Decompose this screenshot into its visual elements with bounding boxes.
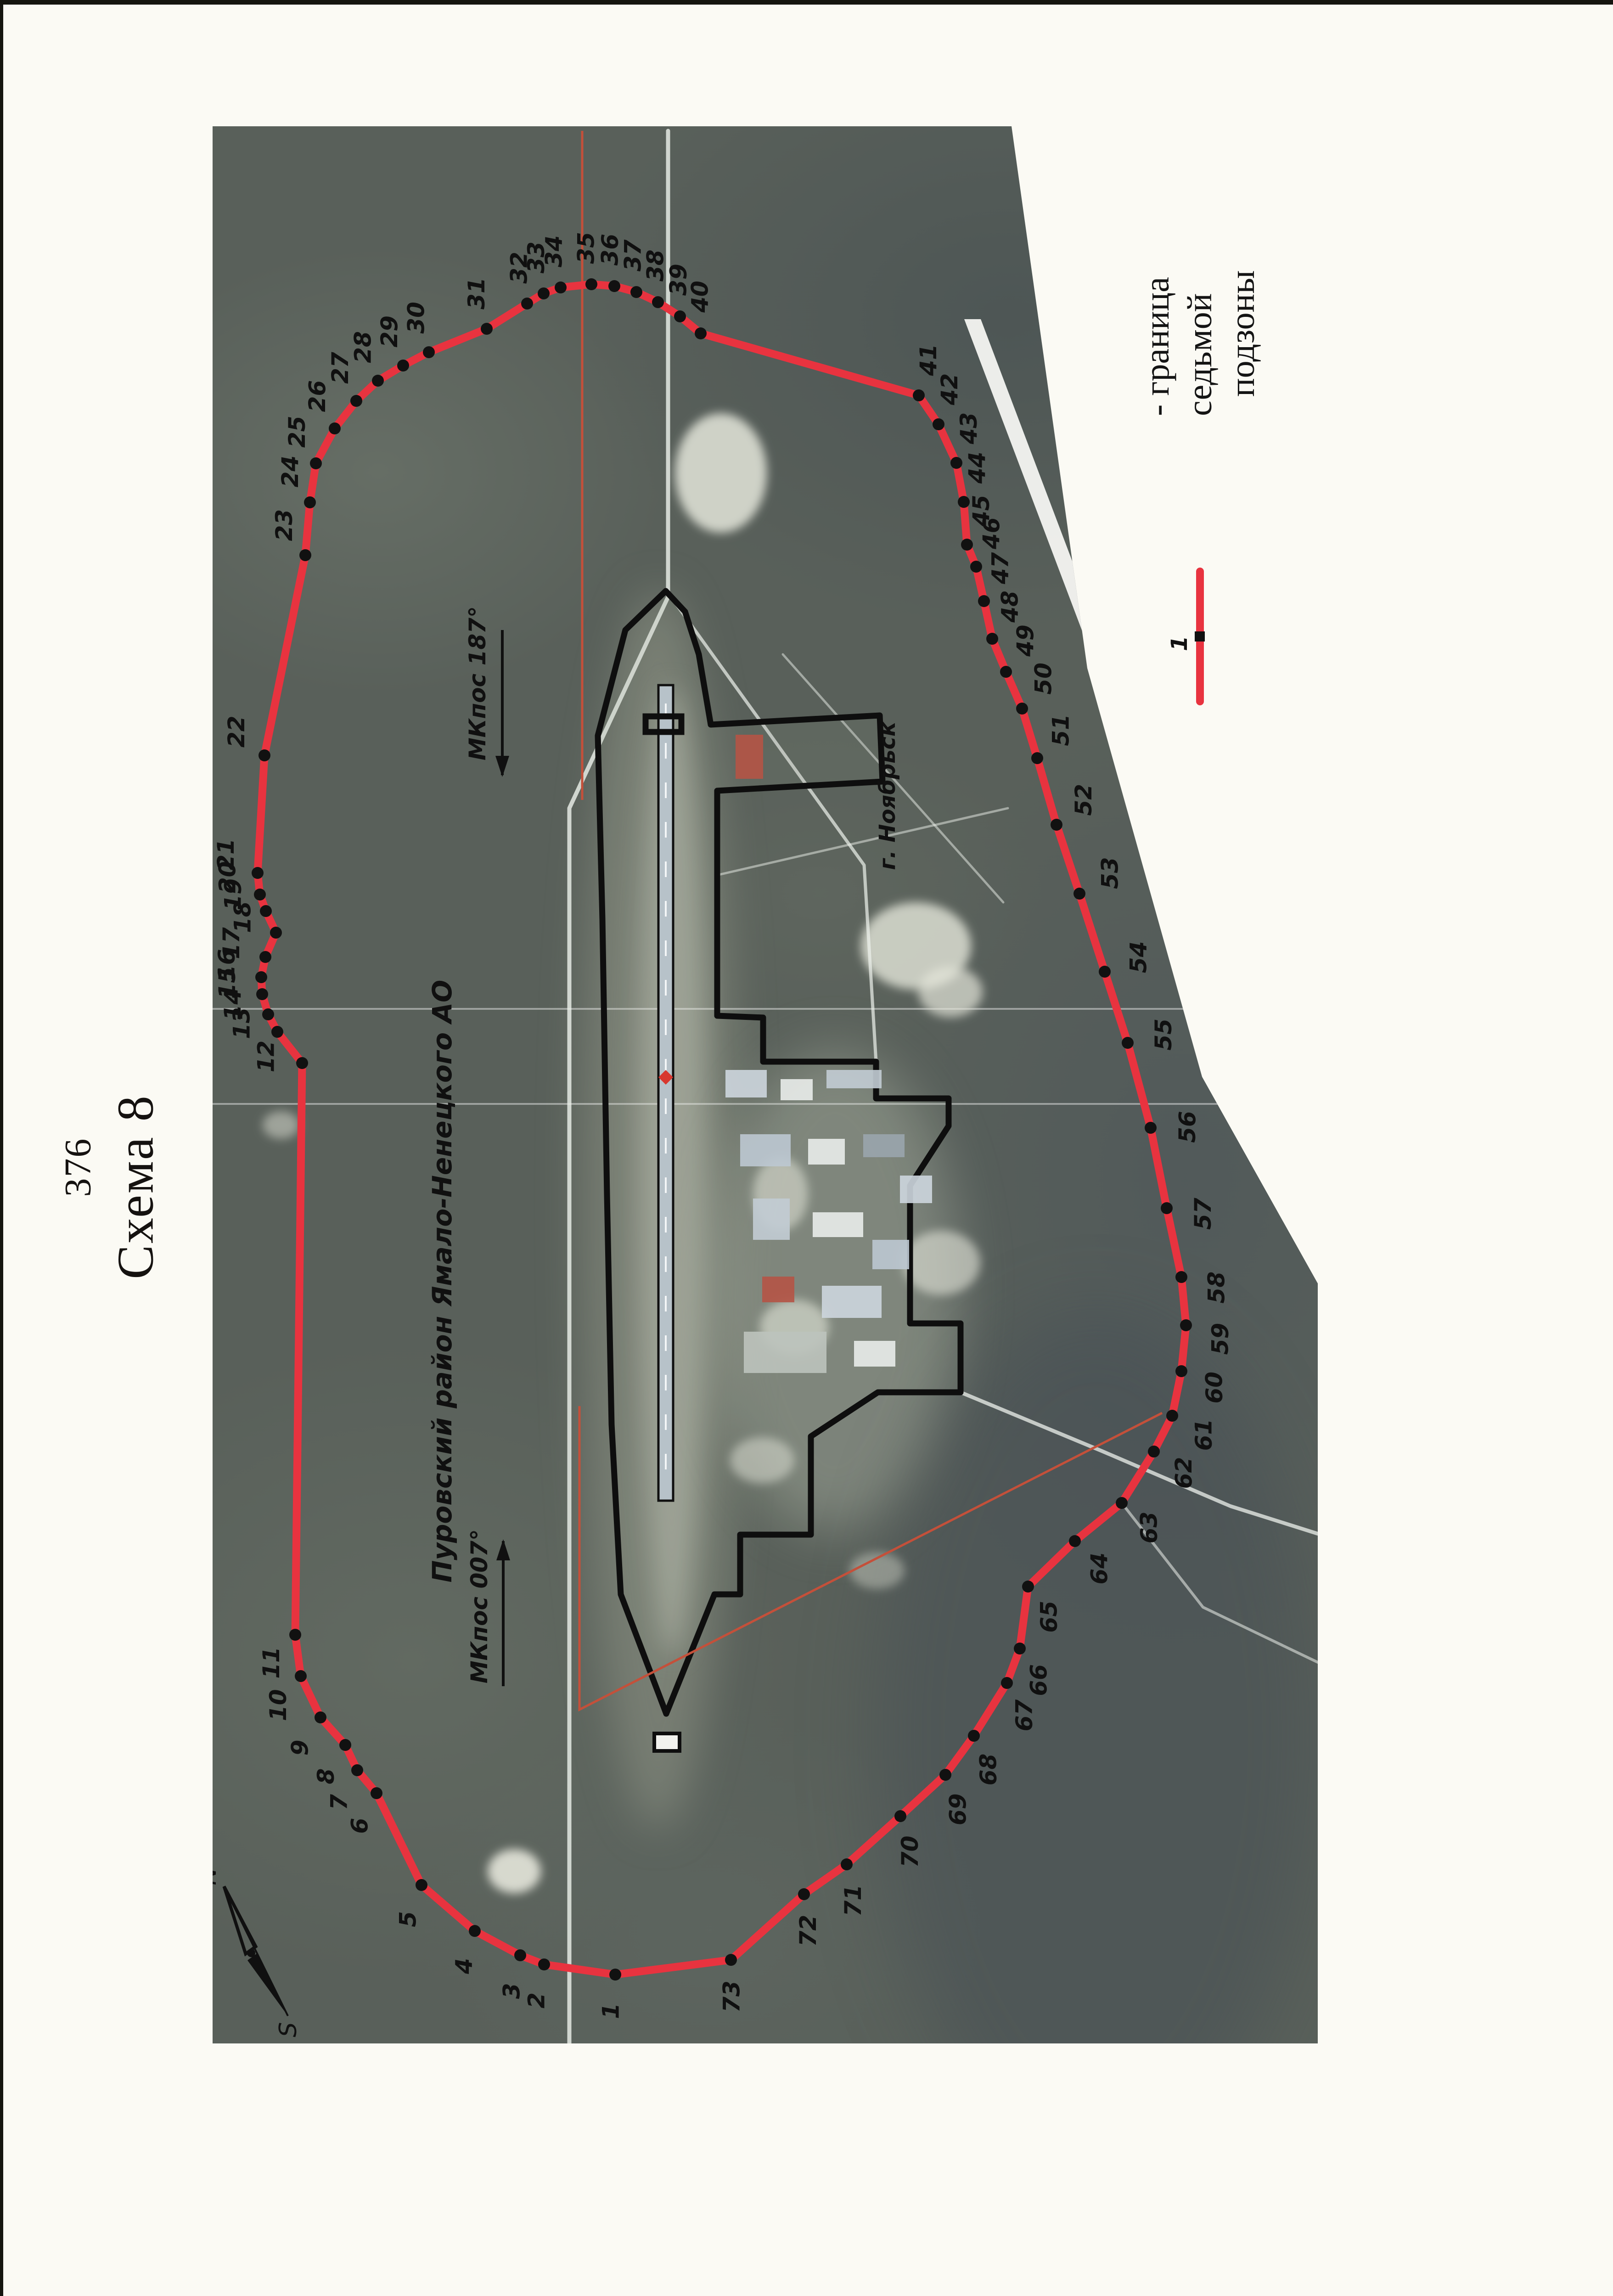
building-block <box>872 1240 909 1269</box>
boundary-point-dot <box>329 422 341 434</box>
boundary-point-dot <box>315 1711 326 1723</box>
boundary-point-label: 62 <box>1170 1457 1197 1489</box>
boundary-point-label: 59 <box>1207 1323 1233 1355</box>
boundary-point-dot <box>1001 1677 1013 1689</box>
boundary-point-dot <box>255 971 267 983</box>
boundary-point-dot <box>1161 1202 1173 1214</box>
boundary-point-dot <box>798 1888 810 1900</box>
building-block <box>826 1070 882 1088</box>
boundary-point-label: 43 <box>955 412 982 445</box>
compass: NS <box>194 1868 302 2037</box>
legend-caption-line2: подзоны <box>1221 191 1264 416</box>
boundary-point-dot <box>469 1925 481 1937</box>
compass-pivot <box>247 1949 255 1957</box>
boundary-point-label: 6 <box>346 1818 373 1834</box>
building-block <box>808 1139 845 1165</box>
boundary-point-dot <box>555 281 567 293</box>
legend-caption-line1: - граница седьмой <box>1136 191 1221 416</box>
sand-patch <box>675 413 767 533</box>
boundary-point-label: 12 <box>253 1041 279 1073</box>
boundary-point-dot <box>538 287 550 299</box>
boundary-point-label: 2 <box>523 1992 550 2009</box>
legend-symbol: 1 <box>1196 568 1204 705</box>
boundary-point-label: 30 <box>403 302 430 334</box>
legend-point-dot <box>1195 631 1205 642</box>
boundary-point-label: 35 <box>573 232 599 264</box>
boundary-point-dot <box>1099 966 1111 978</box>
boundary-point-label: 61 <box>1190 1419 1217 1451</box>
boundary-point-dot <box>259 749 270 761</box>
boundary-point-dot <box>295 1670 307 1682</box>
boundary-point-label: 58 <box>1203 1272 1230 1304</box>
boundary-point-dot <box>372 375 384 387</box>
boundary-point-dot <box>339 1739 351 1751</box>
building-block <box>781 1079 813 1100</box>
boundary-point-dot <box>1175 1271 1187 1283</box>
boundary-point-dot <box>970 561 982 573</box>
boundary-point-dot <box>695 327 707 339</box>
boundary-point-label: 67 <box>1011 1699 1038 1732</box>
building-block <box>863 1134 905 1157</box>
legend-boundary-line-symbol: 1 <box>1196 568 1204 705</box>
boundary-point-dot <box>961 539 973 551</box>
course-label: МКпос 187° <box>464 606 491 760</box>
boundary-point-dot <box>397 360 409 371</box>
boundary-point-dot <box>260 905 272 917</box>
boundary-point-dot <box>1145 1122 1157 1134</box>
legend-caption: - граница седьмой подзоны <box>1136 191 1264 416</box>
course-label: МКпос 007° <box>466 1529 493 1683</box>
boundary-point-label: 47 <box>987 552 1014 585</box>
boundary-point-dot <box>986 633 998 645</box>
boundary-point-dot <box>1014 1643 1026 1654</box>
boundary-point-label: 66 <box>1025 1664 1052 1696</box>
boundary-point-dot <box>481 323 493 335</box>
boundary-point-dot <box>259 951 271 963</box>
boundary-point-dot <box>939 1769 951 1781</box>
building-block <box>725 1070 767 1097</box>
course-arrow-head <box>495 756 509 777</box>
boundary-point-dot <box>416 1879 427 1891</box>
boundary-point-label: 70 <box>897 1835 923 1868</box>
boundary-point-label: 41 <box>915 344 942 377</box>
region-label: Пуровский район Ямало-Ненецкого АО <box>427 980 458 1583</box>
boundary-point-label: 10 <box>265 1689 292 1721</box>
boundary-point-label: 7 <box>326 1794 352 1810</box>
sand-patch <box>263 1111 299 1139</box>
boundary-point-dot <box>1148 1446 1160 1458</box>
boundary-point-label: 5 <box>395 1911 422 1927</box>
boundary-point-dot <box>725 1954 737 1966</box>
boundary-point-label: 55 <box>1150 1019 1177 1051</box>
boundary-point-label: 9 <box>287 1740 313 1756</box>
boundary-point-label: 31 <box>463 277 490 310</box>
boundary-point-dot <box>1022 1581 1034 1593</box>
boundary-point-dot <box>1000 666 1012 678</box>
boundary-point-dot <box>521 298 533 310</box>
boundary-point-dot <box>1016 703 1028 715</box>
boundary-point-dot <box>350 395 362 407</box>
boundary-point-dot <box>262 1008 274 1020</box>
boundary-point-label: 68 <box>975 1754 1002 1786</box>
boundary-point-label: 69 <box>944 1793 971 1825</box>
boundary-point-label: 1 <box>597 2003 624 2019</box>
boundary-point-dot <box>1180 1319 1192 1331</box>
boundary-point-label: 29 <box>376 315 403 348</box>
boundary-point-dot <box>585 278 597 290</box>
boundary-point-label: 52 <box>1070 784 1097 816</box>
boundary-point-dot <box>1051 819 1062 831</box>
boundary-point-dot <box>296 1057 308 1069</box>
compass-needle-south <box>247 1953 288 2016</box>
building-block <box>744 1332 826 1373</box>
boundary-point-dot <box>652 296 664 308</box>
boundary-point-label: 21 <box>213 838 239 871</box>
boundary-point-dot <box>304 496 316 508</box>
legend-point-number: 1 <box>1167 636 1192 651</box>
building-block <box>762 1277 794 1302</box>
boundary-point-label: 65 <box>1036 1601 1062 1633</box>
boundary-point-dot <box>371 1787 382 1799</box>
boundary-point-label: 26 <box>304 380 331 412</box>
document-page: 376 Схема 8 1234567891011121314151617181… <box>0 0 1613 2296</box>
boundary-point-label: 54 <box>1125 941 1152 974</box>
boundary-point-label: 28 <box>349 331 376 363</box>
boundary-point-label: 4 <box>451 1958 478 1975</box>
boundary-point-label: 40 <box>686 281 713 313</box>
boundary-point-dot <box>289 1629 301 1641</box>
boundary-point-label: 60 <box>1201 1372 1228 1404</box>
building-block <box>822 1286 882 1318</box>
boundary-point-dot <box>252 867 264 879</box>
boundary-point-dot <box>1073 888 1085 900</box>
boundary-point-label: 71 <box>840 1885 866 1917</box>
boundary-point-label: 48 <box>997 591 1023 623</box>
boundary-point-dot <box>841 1858 853 1870</box>
boundary-point-dot <box>913 389 925 401</box>
boundary-point-dot <box>1166 1410 1178 1422</box>
boundary-point-label: 63 <box>1136 1512 1163 1544</box>
city-label: г. Ноябрьск <box>875 721 900 870</box>
course-arrow-head <box>496 1539 510 1560</box>
boundary-point-dot <box>299 549 311 561</box>
boundary-point-dot <box>351 1764 363 1776</box>
boundary-point-dot <box>423 346 435 358</box>
boundary-point-label: 50 <box>1030 663 1057 695</box>
boundary-point-label: 57 <box>1190 1198 1216 1230</box>
boundary-point-label: 25 <box>284 416 310 448</box>
sand-patch <box>902 1231 980 1295</box>
boundary-point-dot <box>630 286 642 298</box>
boundary-point-dot <box>310 457 322 469</box>
boundary-point-label: 42 <box>936 373 963 406</box>
boundary-point-label: 8 <box>313 1768 339 1784</box>
boundary-point-dot <box>933 418 944 430</box>
compass-north-label: N <box>194 1868 222 1885</box>
boundary-point-label: 23 <box>271 509 298 541</box>
boundary-point-label: 44 <box>964 452 990 484</box>
boundary-point-label: 72 <box>795 1915 821 1947</box>
boundary-point-dot <box>514 1949 526 1961</box>
boundary-point-label: 51 <box>1048 714 1074 746</box>
boundary-point-label: 64 <box>1086 1553 1113 1585</box>
boundary-point-dot <box>608 280 620 292</box>
boundary-point-dot <box>1031 752 1043 764</box>
building-block <box>740 1134 791 1166</box>
boundary-point-label: 49 <box>1012 625 1039 657</box>
boundary-point-label: 73 <box>718 1981 745 2013</box>
boundary-point-dot <box>270 927 282 939</box>
boundary-point-label: 11 <box>258 1647 285 1679</box>
boundary-point-label: 53 <box>1096 857 1123 889</box>
boundary-point-dot <box>538 1958 550 1970</box>
boundary-point-label: 24 <box>277 456 303 488</box>
sand-patch <box>918 967 983 1017</box>
boundary-point-label: 46 <box>978 517 1005 550</box>
boundary-point-dot <box>894 1810 906 1822</box>
sand-patch <box>488 1849 541 1893</box>
boundary-point-label: 34 <box>541 236 568 268</box>
boundary-point-label: 3 <box>498 1983 525 1999</box>
building-block <box>854 1341 895 1367</box>
boundary-point-label: 22 <box>223 715 250 748</box>
boundary-point-dot <box>271 1026 283 1038</box>
legend: 1 - граница седьмой подзоны <box>1146 191 1254 705</box>
boundary-point-dot <box>1175 1365 1187 1377</box>
building-block <box>753 1199 790 1240</box>
boundary-point-dot <box>978 595 990 607</box>
boundary-point-dot <box>674 310 686 322</box>
map-overlay: 1234567891011121314151617181920212223242… <box>0 0 1613 2296</box>
compass-south-label: S <box>275 2022 302 2037</box>
boundary-point-dot <box>254 889 266 900</box>
boundary-point-dot <box>968 1730 980 1742</box>
boundary-point-dot <box>609 1969 621 1981</box>
building-block <box>813 1212 863 1237</box>
boundary-point-dot <box>256 988 268 1000</box>
boundary-point-dot <box>1116 1497 1128 1509</box>
building-block <box>736 735 763 779</box>
boundary-point-dot <box>950 457 962 469</box>
boundary-point-dot <box>1069 1535 1081 1547</box>
airfield-marker-box <box>654 1733 680 1751</box>
building-block <box>900 1176 932 1203</box>
boundary-point-dot <box>1122 1037 1134 1049</box>
boundary-point-label: 56 <box>1174 1111 1201 1143</box>
